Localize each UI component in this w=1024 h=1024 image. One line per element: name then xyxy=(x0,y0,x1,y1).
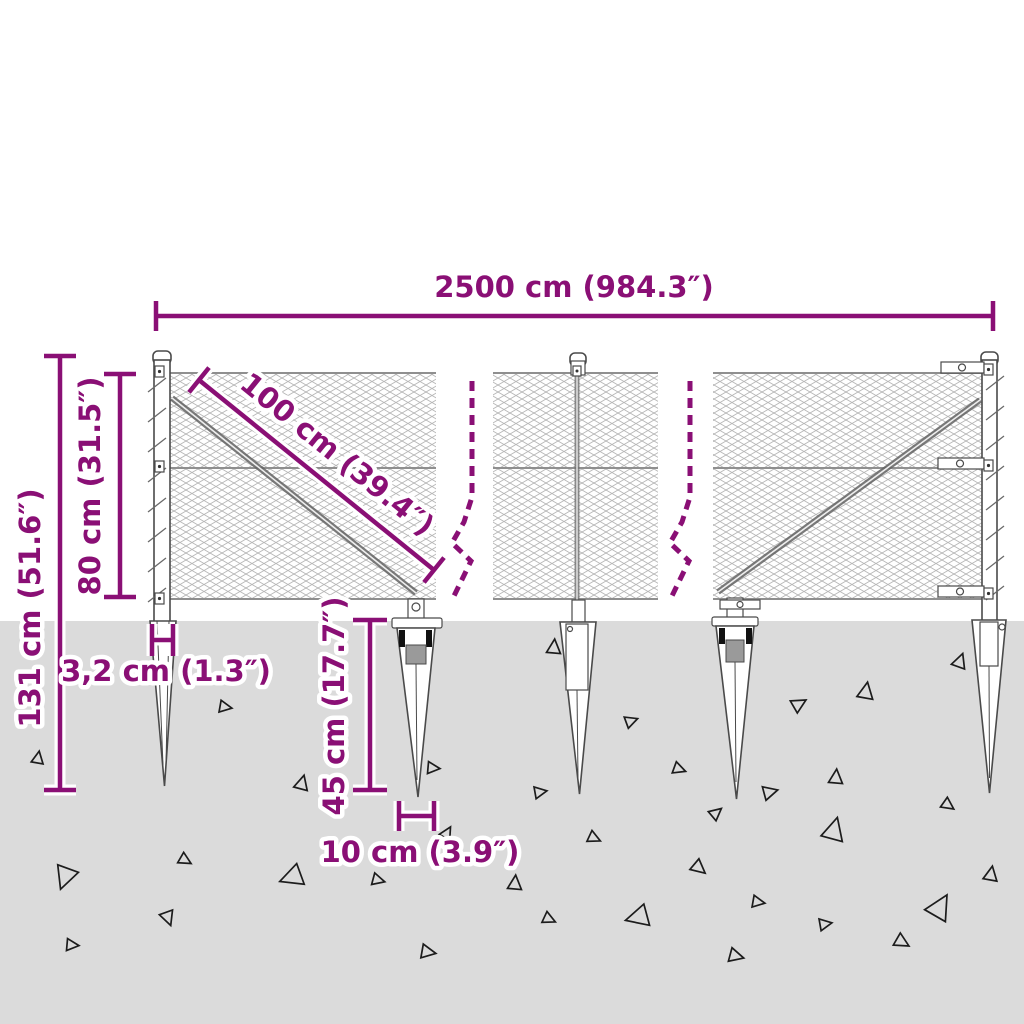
dim-total-width-label: 2500 cm (984.3″) xyxy=(434,270,714,304)
dim-total-height-label: 131 cm (51.6″) xyxy=(13,488,47,727)
diagram-canvas: 2500 cm (984.3″) 100 cm (39.4″) 80 cm (3… xyxy=(0,0,1024,1024)
anchor-flange xyxy=(392,618,442,628)
anchor-flange xyxy=(712,617,758,626)
fence-dimension-diagram: 2500 cm (984.3″) 100 cm (39.4″) 80 cm (3… xyxy=(0,0,1024,1024)
dim-anchor-width-label: 10 cm (3.9″) xyxy=(321,835,520,869)
dim-anchor-depth-label: 45 cm (17.7″) xyxy=(317,597,351,816)
dim-post-width-label: 3,2 cm (1.3″) xyxy=(61,654,271,688)
fence-panel-3 xyxy=(713,372,985,600)
dim-mesh-height-label: 80 cm (31.5″) xyxy=(73,377,107,596)
fence-panel-2 xyxy=(493,372,658,600)
